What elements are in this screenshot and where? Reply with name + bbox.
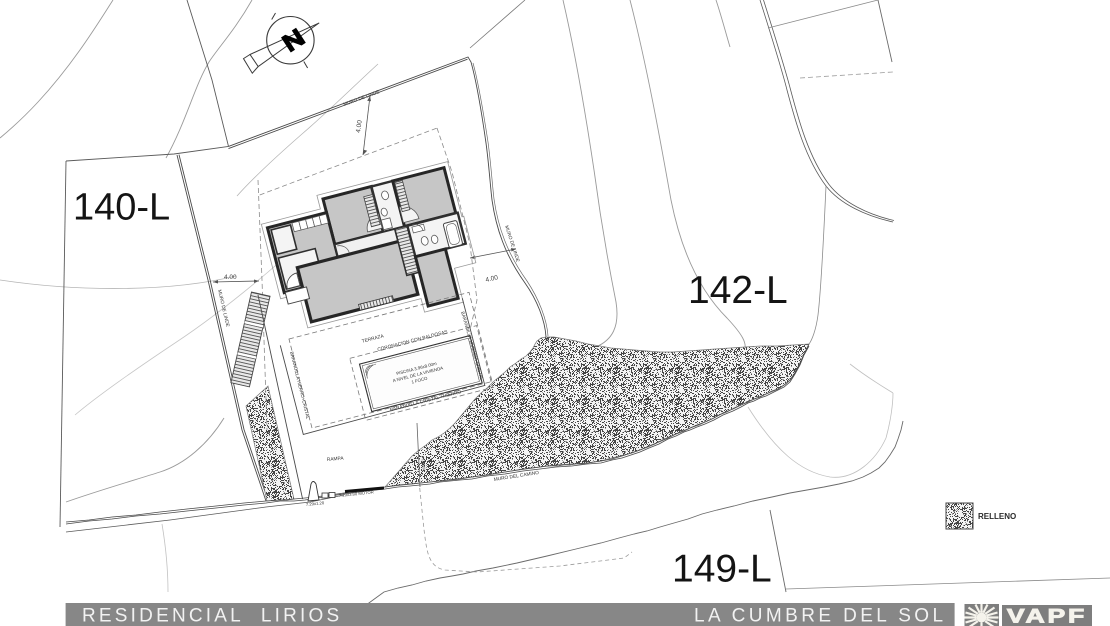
svg-text:RELLENO: RELLENO (978, 512, 1016, 521)
svg-text:RESIDENCIAL LIRIOS: RESIDENCIAL LIRIOS (82, 606, 342, 626)
svg-text:149-L: 149-L (672, 548, 772, 591)
svg-text:142-L: 142-L (688, 269, 788, 312)
svg-text:VAPF: VAPF (1007, 605, 1087, 626)
svg-text:LA CUMBRE DEL SOL: LA CUMBRE DEL SOL (694, 606, 946, 626)
svg-text:140-L: 140-L (73, 187, 170, 229)
svg-text:4.00: 4.00 (224, 274, 237, 281)
